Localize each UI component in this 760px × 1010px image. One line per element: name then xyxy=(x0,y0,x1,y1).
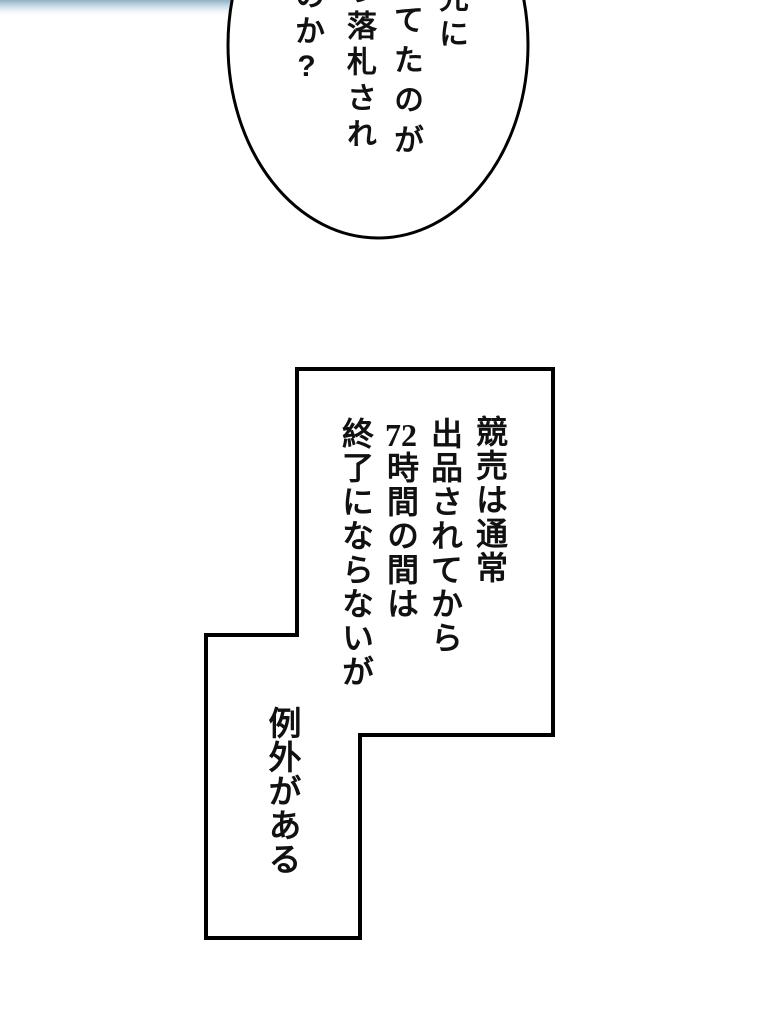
exception-caption-text: 例外がある xyxy=(264,706,297,876)
panel-shapes xyxy=(0,0,760,1010)
caption-hours-text: 時間の間は xyxy=(383,451,419,621)
manga-page: 先に してたのが う落札され のか? 競売は通常 出品されてから 72時間の間は… xyxy=(0,0,760,1010)
caption-text-col-3: 72時間の間は xyxy=(385,419,417,621)
bubble-text-col-1: 先に xyxy=(435,0,465,54)
caption-text-col-1: 競売は通常 xyxy=(474,415,506,585)
caption-text-col-2: 出品されてから xyxy=(429,417,461,655)
speech-bubble-shape xyxy=(228,0,528,238)
caption-hours-number: 72 xyxy=(383,419,419,451)
bubble-text-col-4: のか? xyxy=(291,0,321,88)
bubble-text-col-2: してたのが xyxy=(390,0,420,164)
bubble-text-col-3: う落札され xyxy=(343,0,373,154)
caption-text-col-4: 終了にならないが xyxy=(340,417,372,689)
